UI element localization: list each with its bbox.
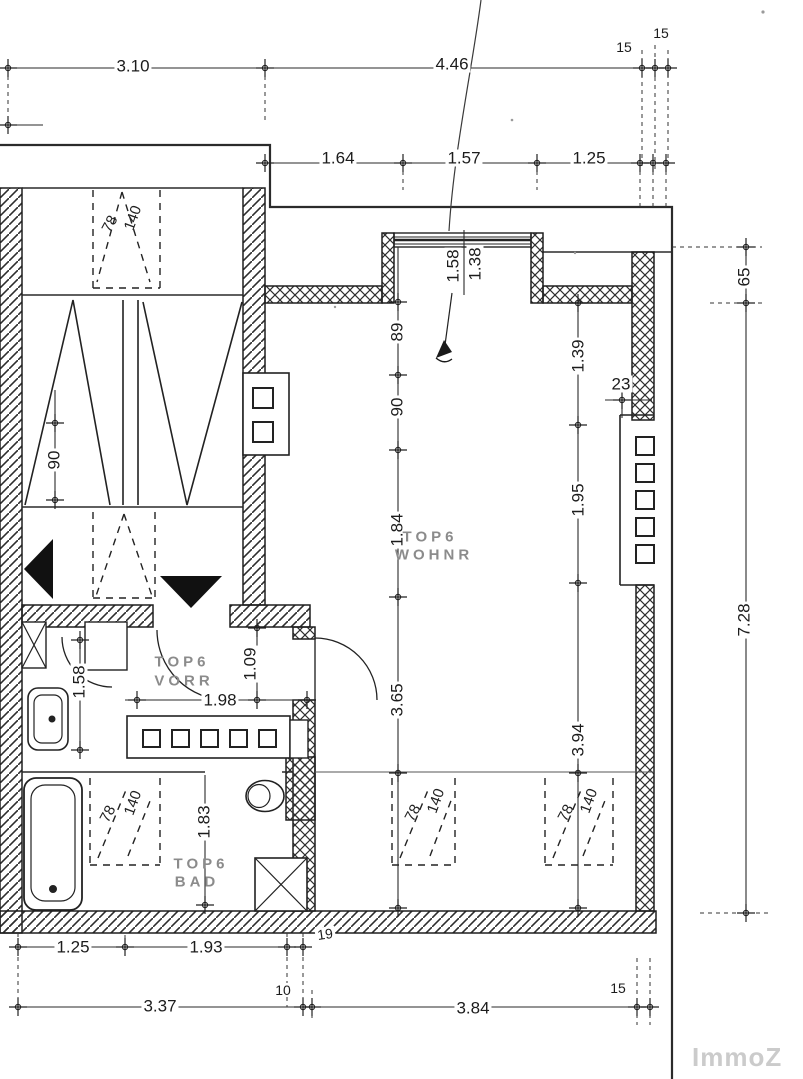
dim-label-15-bottom: 15 bbox=[608, 981, 628, 995]
watermark-immoz: ImmoZ bbox=[692, 1042, 782, 1073]
room-label-bad-1: TOP6 bbox=[174, 857, 229, 872]
dim-label-23: 23 bbox=[610, 376, 633, 393]
cabinet bbox=[85, 622, 127, 670]
dim-label-65: 65 bbox=[736, 266, 753, 289]
window-leader-arrow bbox=[436, 293, 452, 362]
dim-label-310: 3.10 bbox=[114, 58, 151, 75]
dim-label-vorr-158: 1.58 bbox=[71, 663, 88, 700]
dim-label-164: 1.64 bbox=[319, 150, 356, 167]
dim-label-10: 10 bbox=[273, 983, 293, 997]
dim-label-window-138: 1.38 bbox=[467, 245, 484, 282]
dim-label-109: 1.09 bbox=[242, 645, 259, 682]
dim-label-125-bottom: 1.25 bbox=[54, 939, 91, 956]
dim-label-337: 3.37 bbox=[141, 998, 178, 1015]
dim-label-195: 1.95 bbox=[570, 481, 587, 518]
dim-label-window-158: 1.58 bbox=[445, 247, 462, 284]
dim-label-15b: 15 bbox=[651, 26, 671, 40]
room-label-bad-2: BAD bbox=[175, 875, 220, 890]
bathtub bbox=[24, 778, 82, 910]
washbasin bbox=[28, 688, 68, 750]
room-label-wohnzimmer-1: TOP6 bbox=[403, 530, 458, 545]
dim-label-90-mid: 90 bbox=[389, 396, 406, 419]
dim-label-125-top: 1.25 bbox=[570, 150, 607, 167]
radiator bbox=[127, 716, 308, 758]
dim-label-384: 3.84 bbox=[454, 1000, 491, 1017]
toilet bbox=[246, 781, 284, 812]
dim-label-193: 1.93 bbox=[187, 939, 224, 956]
chimney-block bbox=[243, 373, 289, 455]
wardrobe-symbol bbox=[25, 300, 242, 505]
floor-plan: 3.10 4.46 15 15 1.64 1.57 1.25 65 7.28 2… bbox=[0, 0, 803, 1079]
dim-label-394: 3.94 bbox=[570, 721, 587, 758]
dim-label-728: 7.28 bbox=[736, 601, 753, 638]
dim-label-198: 1.98 bbox=[201, 692, 238, 709]
window-right bbox=[620, 415, 654, 585]
window-top bbox=[394, 233, 531, 247]
walls bbox=[0, 188, 656, 933]
shower bbox=[255, 858, 307, 911]
room-label-wohnzimmer-2: WOHNR bbox=[395, 548, 473, 563]
room-label-vorraum-1: TOP6 bbox=[155, 655, 210, 670]
dim-label-19: 19 bbox=[314, 926, 335, 943]
dim-label-183: 1.83 bbox=[196, 803, 213, 840]
scan-crease-line bbox=[449, 0, 481, 231]
wohnzimmer-door-arc bbox=[315, 638, 377, 700]
dim-label-365: 3.65 bbox=[389, 681, 406, 718]
dim-label-157: 1.57 bbox=[445, 150, 482, 167]
dim-label-89: 89 bbox=[389, 321, 406, 344]
dim-label-15a: 15 bbox=[614, 40, 634, 54]
dim-label-139: 1.39 bbox=[570, 337, 587, 374]
shaft bbox=[22, 622, 46, 668]
dim-label-446: 4.46 bbox=[433, 56, 470, 73]
fixtures bbox=[22, 373, 308, 911]
room-label-vorraum-2: VORR bbox=[154, 674, 213, 689]
dim-label-90-left: 90 bbox=[46, 449, 63, 472]
